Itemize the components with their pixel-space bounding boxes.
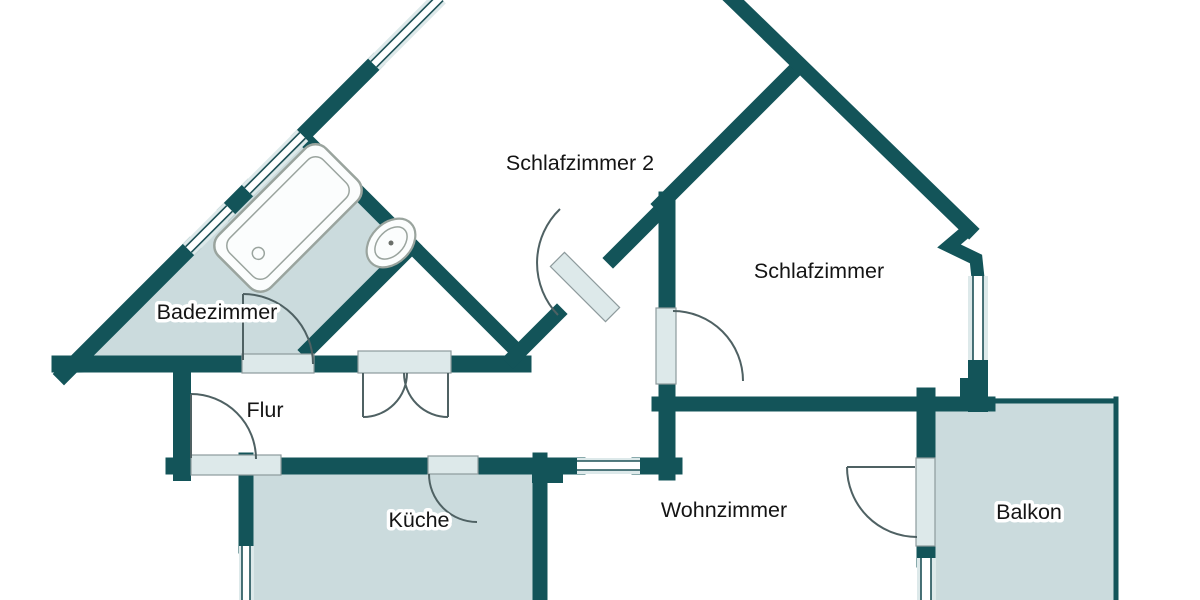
door-schlafzimmer — [673, 311, 743, 381]
door-sill-badezimmer — [242, 354, 314, 373]
room-label-schlafzimmer-2: Schlafzimmer 2 — [506, 151, 654, 175]
room-area-balkon — [935, 398, 1116, 600]
room-label-badezimmer: Badezimmer — [157, 300, 278, 324]
wall-segment — [532, 458, 563, 483]
door-double-flur — [363, 373, 448, 417]
door-balkon — [847, 467, 917, 537]
wall-segment — [949, 229, 978, 278]
door-sill-balkon — [916, 458, 935, 546]
floor-plan: Schlafzimmer 2 Schlafzimmer Badezimmer F… — [0, 0, 1200, 600]
door-sill-kueche — [428, 456, 478, 474]
door-sill-schlafzimmer — [656, 308, 676, 384]
room-label-balkon: Balkon — [996, 500, 1062, 524]
room-label-flur: Flur — [246, 398, 283, 422]
wall-segment — [661, 70, 795, 204]
window-schlafzimmer2 — [368, 0, 446, 70]
window-wohnzimmer-balkon — [917, 558, 936, 600]
room-label-kueche: Küche — [389, 508, 450, 532]
window-kueche — [239, 546, 254, 600]
wall-segment — [513, 314, 557, 358]
door-sill-entry — [191, 455, 281, 475]
room-label-schlafzimmer: Schlafzimmer — [754, 259, 884, 283]
room-label-wohnzimmer: Wohnzimmer — [661, 498, 787, 522]
door-sill-double-door — [358, 351, 451, 373]
wall-segment — [727, 0, 969, 229]
wall-segment — [613, 213, 658, 258]
wall-segment — [302, 64, 374, 136]
window-schlafzimmer — [968, 276, 988, 360]
window-flur-wohnzimmer — [577, 458, 640, 474]
